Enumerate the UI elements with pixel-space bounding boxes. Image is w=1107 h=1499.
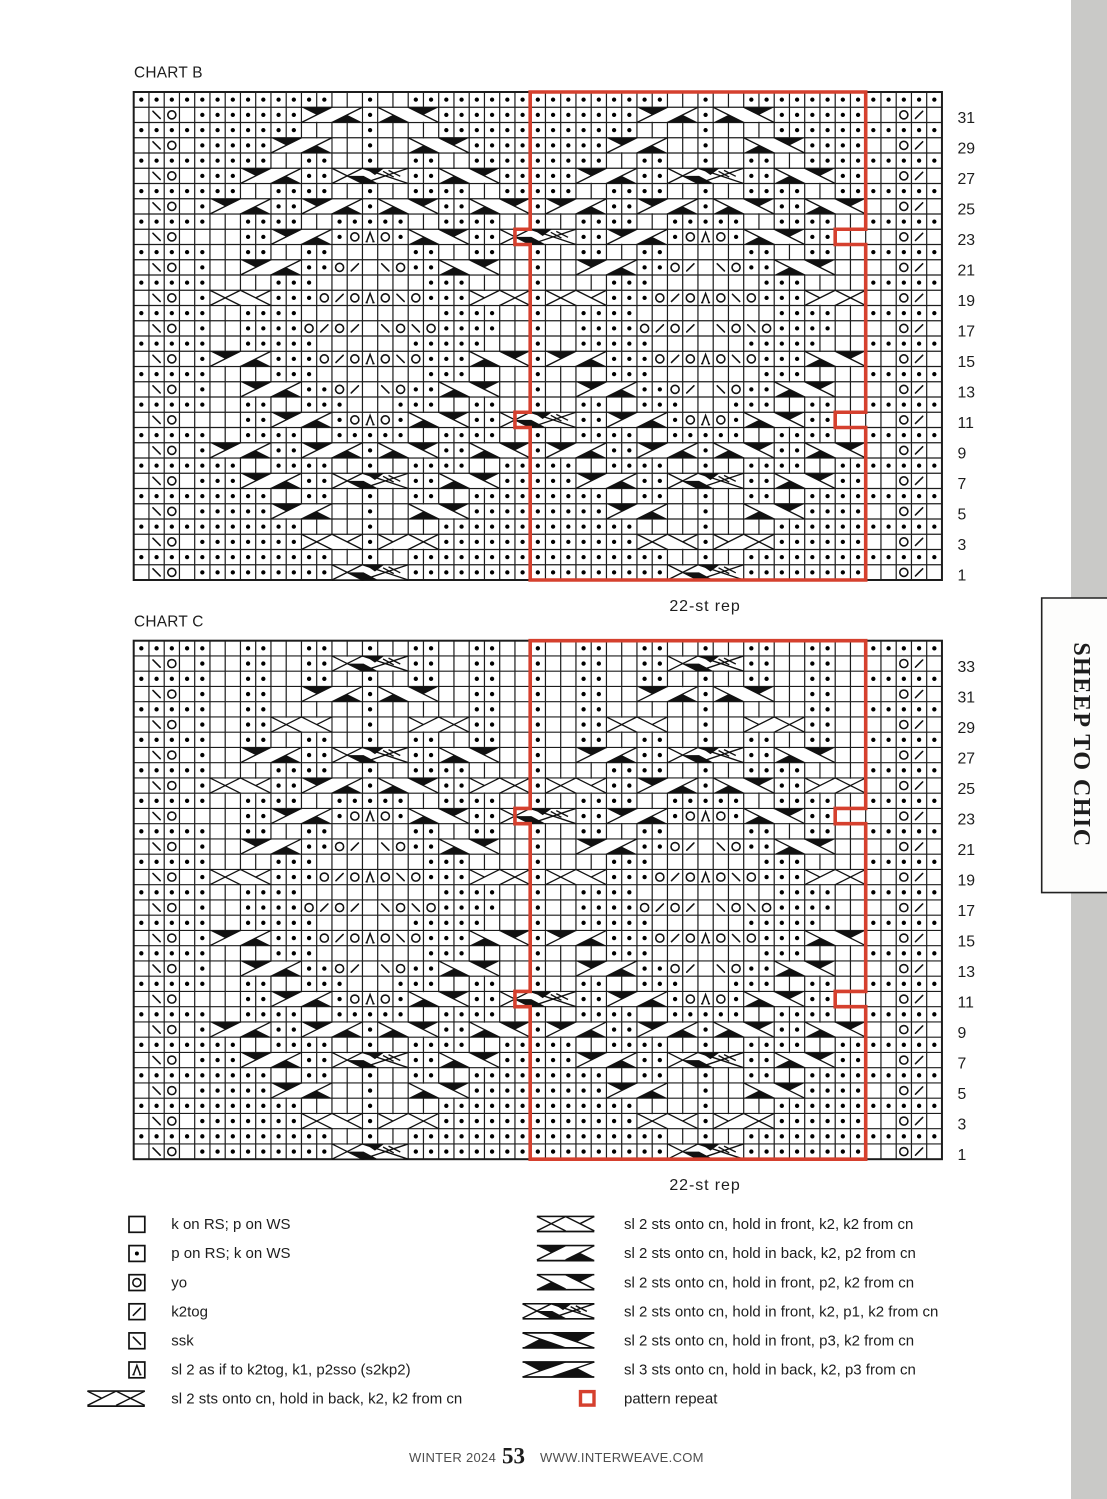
svg-text:19: 19 xyxy=(958,293,976,310)
svg-text:22-st rep: 22-st rep xyxy=(669,598,740,615)
svg-text:31: 31 xyxy=(958,110,976,127)
svg-text:3: 3 xyxy=(958,537,967,554)
svg-text:9: 9 xyxy=(958,446,967,463)
svg-text:15: 15 xyxy=(958,354,976,371)
svg-text:sl 2 sts onto cn, hold in back: sl 2 sts onto cn, hold in back, k2, p2 f… xyxy=(624,1245,916,1262)
svg-text:p on RS; k on WS: p on RS; k on WS xyxy=(171,1245,290,1262)
svg-text:29: 29 xyxy=(958,720,976,737)
svg-text:k on RS; p on WS: k on RS; p on WS xyxy=(171,1216,290,1233)
svg-text:sl 2 sts onto cn, hold in fron: sl 2 sts onto cn, hold in front, p3, k2 … xyxy=(624,1333,914,1350)
svg-text:1: 1 xyxy=(958,568,967,585)
svg-text:29: 29 xyxy=(958,141,976,158)
svg-text:17: 17 xyxy=(958,903,976,920)
svg-text:sl 2 as if to k2tog, k1, p2sso: sl 2 as if to k2tog, k1, p2sso (s2kp2) xyxy=(171,1362,410,1379)
svg-text:11: 11 xyxy=(958,994,975,1011)
svg-text:5: 5 xyxy=(958,1086,967,1103)
svg-text:7: 7 xyxy=(958,476,967,493)
svg-text:CHART B: CHART B xyxy=(134,65,203,82)
svg-text:23: 23 xyxy=(958,811,976,828)
svg-text:sl 2 sts onto cn, hold in back: sl 2 sts onto cn, hold in back, k2, k2 f… xyxy=(171,1391,462,1408)
svg-text:ssk: ssk xyxy=(171,1333,194,1350)
svg-text:sl 2 sts onto cn, hold in fron: sl 2 sts onto cn, hold in front, p2, k2 … xyxy=(624,1274,914,1291)
svg-text:SHEEP TO CHIC: SHEEP TO CHIC xyxy=(1068,642,1094,847)
svg-text:k2tog: k2tog xyxy=(171,1303,208,1320)
svg-text:sl 2 sts onto cn, hold in fron: sl 2 sts onto cn, hold in front, k2, k2 … xyxy=(624,1216,913,1233)
svg-text:11: 11 xyxy=(958,415,975,432)
svg-text:sl 2 sts onto cn, hold in fron: sl 2 sts onto cn, hold in front, k2, p1,… xyxy=(624,1303,938,1320)
svg-text:19: 19 xyxy=(958,872,976,889)
svg-text:7: 7 xyxy=(958,1055,967,1072)
svg-text:15: 15 xyxy=(958,933,976,950)
svg-text:27: 27 xyxy=(958,171,976,188)
svg-text:33: 33 xyxy=(958,659,976,676)
svg-text:sl 3 sts onto cn, hold in back: sl 3 sts onto cn, hold in back, k2, p3 f… xyxy=(624,1362,916,1379)
svg-text:WINTER 2024: WINTER 2024 xyxy=(409,1450,496,1465)
svg-text:13: 13 xyxy=(958,385,976,402)
svg-text:9: 9 xyxy=(958,1025,967,1042)
svg-text:CHART C: CHART C xyxy=(134,614,204,631)
svg-text:3: 3 xyxy=(958,1116,967,1133)
svg-text:21: 21 xyxy=(958,842,976,859)
svg-text:23: 23 xyxy=(958,232,976,249)
svg-text:pattern repeat: pattern repeat xyxy=(624,1391,718,1408)
svg-text:27: 27 xyxy=(958,750,976,767)
svg-text:5: 5 xyxy=(958,507,967,524)
svg-text:25: 25 xyxy=(958,781,976,798)
svg-text:22-st rep: 22-st rep xyxy=(669,1177,740,1194)
svg-text:31: 31 xyxy=(958,689,976,706)
svg-text:21: 21 xyxy=(958,263,976,280)
svg-text:1: 1 xyxy=(958,1147,967,1164)
svg-text:13: 13 xyxy=(958,964,976,981)
svg-text:WWW.INTERWEAVE.COM: WWW.INTERWEAVE.COM xyxy=(540,1450,704,1465)
svg-text:17: 17 xyxy=(958,324,976,341)
svg-text:53: 53 xyxy=(502,1444,525,1469)
svg-text:yo: yo xyxy=(171,1274,187,1291)
svg-text:25: 25 xyxy=(958,202,976,219)
